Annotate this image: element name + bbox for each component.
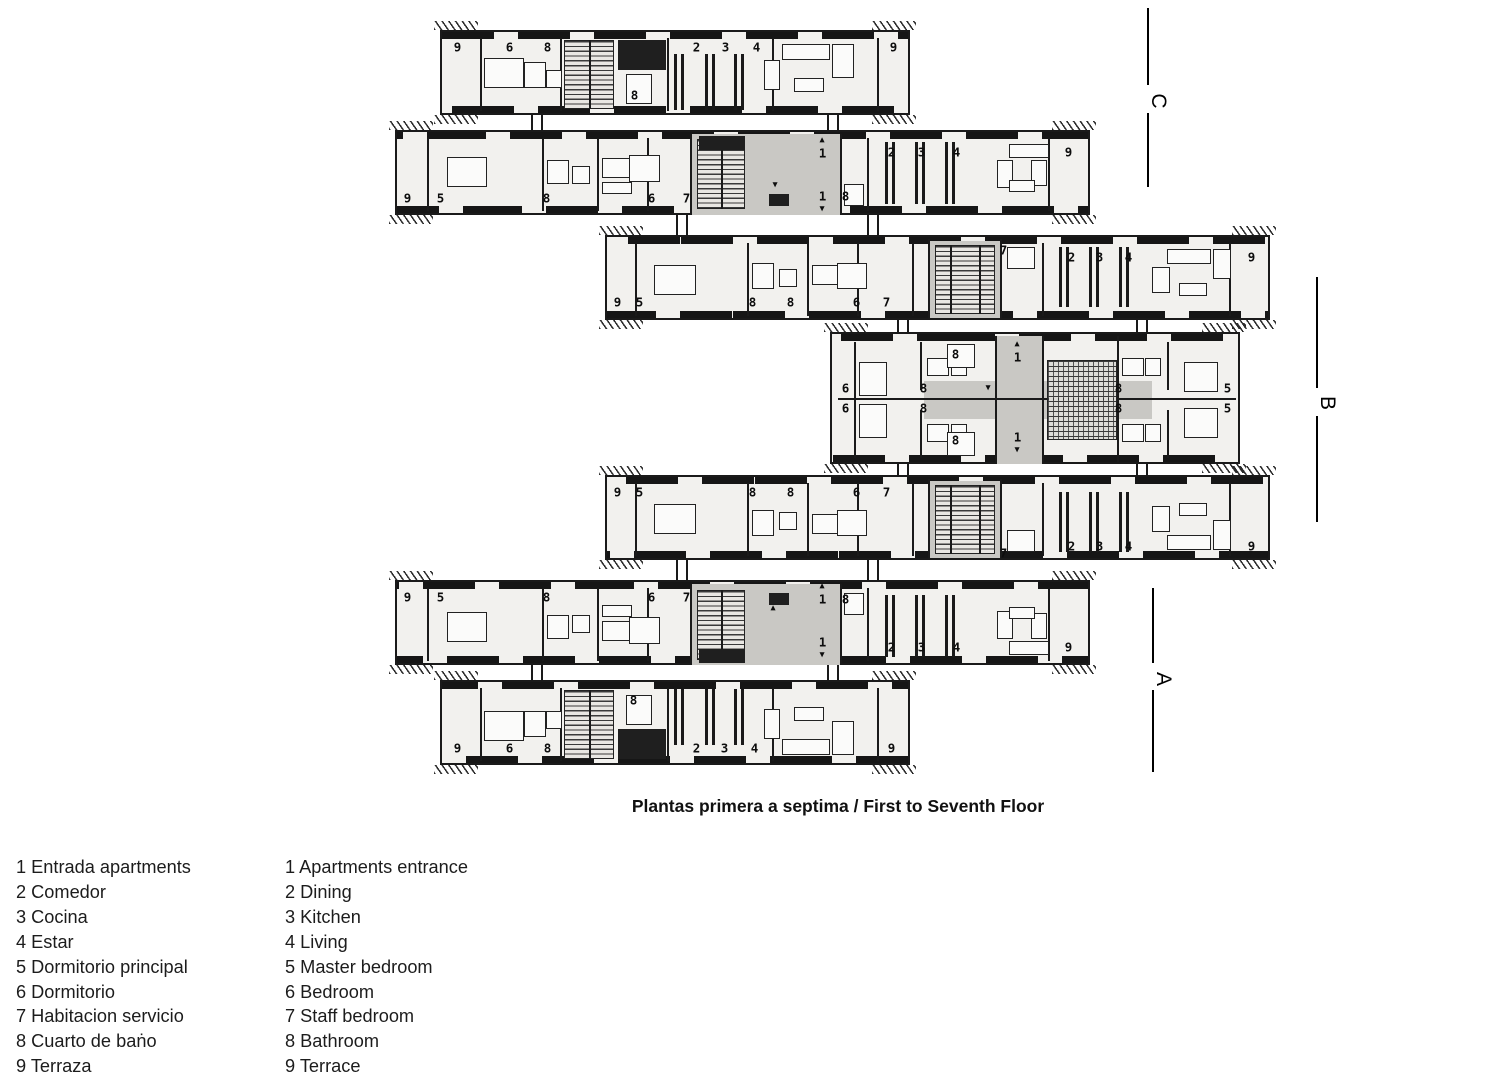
stair [935,485,995,554]
furniture [654,265,696,295]
entrance-arrow: ▼ [985,383,990,393]
block-connector [827,115,839,130]
legend-item-en-8: 8 Bathroom [285,1029,468,1054]
legend-item-es-4: 4 Estar [16,930,191,955]
room-number-6: 6 [853,295,860,310]
room-number-9: 9 [614,295,621,310]
section-marker-letter-A: A [1150,666,1176,692]
room-number-7: 7 [683,191,690,206]
interior-wall [589,690,591,759]
furniture [602,621,632,641]
furniture [1145,358,1161,376]
plan-wing-upper-mid [605,235,1270,320]
interior-wall [480,38,482,111]
legend-item-en-2: 2 Dining [285,880,468,905]
room-number-9: 9 [888,741,895,756]
room-number-8: 8 [952,347,959,362]
interior-wall [979,245,981,314]
ground-hatch [599,226,643,235]
furniture [812,265,840,285]
room-number-9: 9 [404,191,411,206]
room-number-8: 8 [544,741,551,756]
furniture [546,70,562,88]
legend-item-en-4: 4 Living [285,930,468,955]
room-number-6: 6 [506,741,513,756]
interior-wall [690,134,692,215]
room-number-9: 9 [454,741,461,756]
furniture [1007,530,1035,552]
interior-wall [427,138,429,211]
plan-wing-lower-mid [605,475,1270,560]
plan-wing-center [830,332,1240,464]
section-line-B [1316,277,1318,388]
room-number-8: 8 [952,433,959,448]
service-core [769,194,789,206]
ground-hatch [1232,226,1276,235]
service-core [618,40,666,70]
block-connector [867,560,879,580]
furniture [547,615,569,639]
room-number-7: 7 [883,485,890,500]
ground-hatch [1052,215,1096,224]
furniture [1179,283,1207,296]
ground-hatch [599,560,643,569]
furniture [1184,408,1218,438]
plan-wing-lower [395,580,1090,665]
block-connector [1136,464,1148,475]
furniture [1009,144,1049,158]
furniture [779,512,797,530]
closet-strip [1089,247,1092,307]
room-number-9: 9 [1248,539,1255,554]
room-number-5: 5 [437,191,444,206]
legend-item-es-8: 8 Cuarto de baṅo [16,1029,191,1054]
section-line-C [1147,8,1149,85]
stair [1047,360,1117,440]
ground-hatch [872,671,916,680]
interior-wall [912,483,914,556]
interior-wall [838,398,1236,400]
furniture [1152,267,1170,293]
ground-hatch [599,320,643,329]
interior-wall [1042,336,1044,464]
room-number-5: 5 [1224,381,1231,396]
legend-item-es-1: 1 Entrada apartments [16,855,191,880]
service-core [699,649,745,663]
closet-strip [712,689,715,745]
interior-wall [950,245,952,314]
ground-hatch [1232,560,1276,569]
furniture [1007,247,1035,269]
interior-wall [912,243,914,316]
furniture [1179,503,1207,516]
furniture [629,155,660,182]
furniture [837,263,867,289]
room-number-8: 8 [1115,381,1122,396]
furniture [779,269,797,287]
interior-wall [807,243,809,316]
room-number-1: 1 [819,635,826,650]
ground-hatch [872,21,916,30]
furniture [546,711,562,729]
room-number-8: 8 [787,295,794,310]
ground-hatch [599,466,643,475]
room-number-9: 9 [1065,640,1072,655]
room-number-2: 2 [888,640,895,655]
closet-strip [734,689,737,745]
furniture [572,615,590,633]
closet-strip [945,142,948,204]
room-number-7: 7 [1000,546,1007,561]
furniture [927,424,949,442]
furniture [1009,641,1049,655]
room-number-3: 3 [1096,250,1103,265]
furniture [794,707,824,721]
interior-wall [920,410,922,458]
ground-hatch [1232,466,1276,475]
section-line-A [1152,690,1154,772]
ground-hatch [389,571,433,580]
room-number-4: 4 [953,640,960,655]
room-number-2: 2 [693,40,700,55]
room-number-9: 9 [1065,145,1072,160]
closet-strip [674,689,677,745]
legend-item-en-6: 6 Bedroom [285,980,468,1005]
room-number-8: 8 [544,40,551,55]
room-number-9: 9 [614,485,621,500]
floor-plan-page: 9688234995867▲11▼▼8234995886772349668888… [0,0,1500,1083]
interior-wall [995,336,997,464]
furniture [832,44,854,78]
room-number-3: 3 [918,145,925,160]
service-core [618,729,666,759]
interior-wall [928,479,930,560]
entrance-arrow: ▲ [770,603,775,613]
block-connector [827,665,839,680]
legend-item-en-3: 3 Kitchen [285,905,468,930]
room-number-8: 8 [749,295,756,310]
interior-wall [867,588,869,661]
interior-wall [427,588,429,661]
room-number-4: 4 [751,741,758,756]
room-number-5: 5 [437,590,444,605]
interior-wall [1167,342,1169,390]
furniture [1122,358,1144,376]
plan-caption: Plantas primera a septima / First to Sev… [558,796,1118,817]
room-number-5: 5 [636,485,643,500]
furniture [1213,249,1231,279]
ground-hatch [824,323,868,332]
room-number-6: 6 [842,401,849,416]
service-core [699,136,745,150]
ground-hatch [872,765,916,774]
room-number-4: 4 [1125,539,1132,554]
legend-column-english: 1 Apartments entrance2 Dining3 Kitchen4 … [285,855,468,1079]
room-number-8: 8 [543,191,550,206]
interior-wall [1042,243,1044,316]
ground-hatch [1052,665,1096,674]
closet-strip [1059,247,1062,307]
closet-strip [1119,247,1122,307]
entrance-arrow: ▲ [819,135,824,145]
room-number-9: 9 [454,40,461,55]
closet-strip [741,689,744,745]
room-number-8: 8 [920,401,927,416]
furniture [1184,362,1218,392]
entrance-arrow: ▼ [1014,445,1019,455]
furniture [447,157,487,187]
block-connector [1136,320,1148,332]
closet-strip [1119,492,1122,552]
ground-hatch [434,21,478,30]
room-number-9: 9 [890,40,897,55]
legend-item-en-5: 5 Master bedroom [285,955,468,980]
room-number-8: 8 [630,693,637,708]
room-number-7: 7 [683,590,690,605]
entrance-arrow: ▼ [819,204,824,214]
legend-item-es-2: 2 Comedor [16,880,191,905]
furniture [524,711,546,737]
furniture [602,182,632,194]
closet-strip [705,54,708,110]
furniture [484,58,524,88]
ground-hatch [1052,121,1096,130]
room-number-4: 4 [953,145,960,160]
room-number-8: 8 [842,592,849,607]
closet-strip [681,54,684,110]
block-connector [531,665,543,680]
interior-wall [807,483,809,556]
interior-wall [950,485,952,554]
ground-hatch [434,765,478,774]
block-connector [897,464,909,475]
room-number-6: 6 [648,590,655,605]
closet-strip [1059,492,1062,552]
interior-wall [667,688,669,761]
room-number-2: 2 [693,741,700,756]
legend-item-es-7: 7 Habitacion servicio [16,1004,191,1029]
interior-wall [979,485,981,554]
interior-wall [1042,483,1044,556]
furniture [927,358,949,376]
room-number-1: 1 [819,592,826,607]
room-number-2: 2 [1068,539,1075,554]
room-number-8: 8 [543,590,550,605]
legend-item-es-5: 5 Dormitorio principal [16,955,191,980]
room-number-1: 1 [819,146,826,161]
interior-wall [877,38,879,111]
block-connector [676,215,688,235]
ground-hatch [1052,571,1096,580]
room-number-3: 3 [722,40,729,55]
interior-wall [690,584,692,665]
furniture [837,510,867,536]
furniture [1009,607,1035,619]
room-number-3: 3 [1096,539,1103,554]
room-number-4: 4 [1125,250,1132,265]
section-line-A [1152,588,1154,663]
entrance-arrow: ▼ [819,650,824,660]
closet-strip [741,54,744,110]
furniture [752,510,774,536]
interior-wall [597,588,599,661]
interior-wall [480,688,482,761]
room-number-8: 8 [1115,401,1122,416]
furniture [447,612,487,642]
closet-strip [712,54,715,110]
furniture [1122,424,1144,442]
interior-wall [667,38,669,111]
legend-item-en-7: 7 Staff bedroom [285,1004,468,1029]
entrance-arrow: ▲ [819,581,824,591]
furniture [794,78,824,92]
furniture [547,160,569,184]
interior-wall [867,138,869,211]
block-connector [531,115,543,130]
section-line-B [1316,416,1318,522]
room-number-8: 8 [787,485,794,500]
room-number-1: 1 [1014,350,1021,365]
room-number-8: 8 [749,485,756,500]
room-number-6: 6 [842,381,849,396]
furniture [832,721,854,755]
interior-wall [928,239,930,320]
closet-strip [734,54,737,110]
legend-item-en-1: 1 Apartments entrance [285,855,468,880]
ground-hatch [389,665,433,674]
interior-wall [589,40,591,109]
exterior-wall [442,32,908,39]
furniture [782,44,830,60]
ground-hatch [389,215,433,224]
furniture [1213,520,1231,550]
furniture [764,709,780,739]
closet-strip [1089,492,1092,552]
furniture [859,404,887,438]
room-number-8: 8 [631,88,638,103]
furniture [629,617,660,644]
room-number-6: 6 [853,485,860,500]
room-number-7: 7 [883,295,890,310]
interior-wall [1167,410,1169,458]
furniture [1152,506,1170,532]
furniture [812,514,840,534]
furniture [602,158,632,178]
room-number-5: 5 [636,295,643,310]
closet-strip [681,689,684,745]
room-number-9: 9 [404,590,411,605]
ground-hatch [872,115,916,124]
section-line-C [1147,113,1149,187]
furniture [1167,535,1211,550]
closet-strip [674,54,677,110]
room-number-9: 9 [1248,250,1255,265]
floor-plan-drawing: 9688234995867▲11▼▼8234995886772349668888… [0,0,1500,1083]
room-number-1: 1 [1014,430,1021,445]
interior-wall [854,342,856,458]
room-number-1: 1 [819,189,826,204]
interior-wall [597,138,599,211]
furniture [1009,180,1035,192]
room-number-6: 6 [506,40,513,55]
furniture [1167,249,1211,264]
room-number-3: 3 [918,640,925,655]
legend-item-es-9: 9 Terraza [16,1054,191,1079]
furniture [484,711,524,741]
room-number-4: 4 [753,40,760,55]
furniture [572,166,590,184]
section-marker-letter-B: B [1314,390,1340,416]
block-connector [867,215,879,235]
room-number-8: 8 [920,381,927,396]
interior-wall [877,688,879,761]
ground-hatch [824,464,868,473]
room-number-6: 6 [648,191,655,206]
exterior-wall [442,756,908,763]
section-marker-letter-C: C [1145,88,1171,114]
furniture [654,504,696,534]
legend-item-es-6: 6 Dormitorio [16,980,191,1005]
exterior-wall [442,682,908,689]
ground-hatch [434,115,478,124]
ground-hatch [434,671,478,680]
furniture [764,60,780,90]
entrance-arrow: ▼ [772,180,777,190]
furniture [524,62,546,88]
furniture [1145,424,1161,442]
block-connector [897,320,909,332]
ground-hatch [1202,323,1246,332]
room-number-7: 7 [1000,243,1007,258]
furniture [859,362,887,396]
legend-item-en-9: 9 Terrace [285,1054,468,1079]
room-number-2: 2 [1068,250,1075,265]
room-number-3: 3 [721,741,728,756]
block-connector [676,560,688,580]
legend-item-es-3: 3 Cocina [16,905,191,930]
plan-wing-upper [395,130,1090,215]
furniture [752,263,774,289]
entrance-arrow: ▲ [1014,339,1019,349]
furniture [782,739,830,755]
closet-strip [945,595,948,657]
room-number-2: 2 [888,145,895,160]
furniture [602,605,632,617]
ground-hatch [389,121,433,130]
room-number-8: 8 [842,189,849,204]
room-number-5: 5 [1224,401,1231,416]
closet-strip [705,689,708,745]
legend-column-spanish: 1 Entrada apartments2 Comedor3 Cocina4 E… [16,855,191,1079]
stair [935,245,995,314]
